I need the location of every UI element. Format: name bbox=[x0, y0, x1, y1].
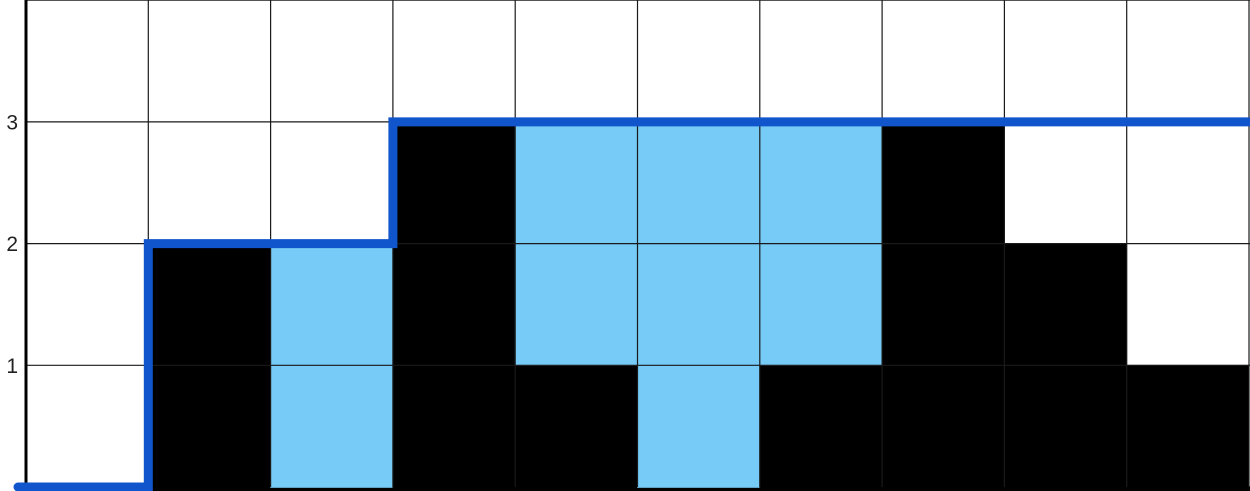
water-cell bbox=[637, 122, 760, 488]
trapping-rain-water-chart: 123 bbox=[0, 0, 1250, 491]
elevation-bar bbox=[882, 122, 1005, 488]
y-tick-label: 1 bbox=[6, 355, 18, 378]
chart-canvas: 123 bbox=[0, 0, 1250, 491]
elevation-bar bbox=[759, 365, 882, 488]
elevation-bar bbox=[393, 122, 516, 488]
y-axis-line bbox=[25, 0, 28, 491]
y-tick-label: 3 bbox=[6, 111, 18, 134]
elevation-bar bbox=[1126, 365, 1249, 488]
elevation-bar bbox=[515, 365, 638, 488]
y-tick-label: 2 bbox=[6, 233, 18, 256]
